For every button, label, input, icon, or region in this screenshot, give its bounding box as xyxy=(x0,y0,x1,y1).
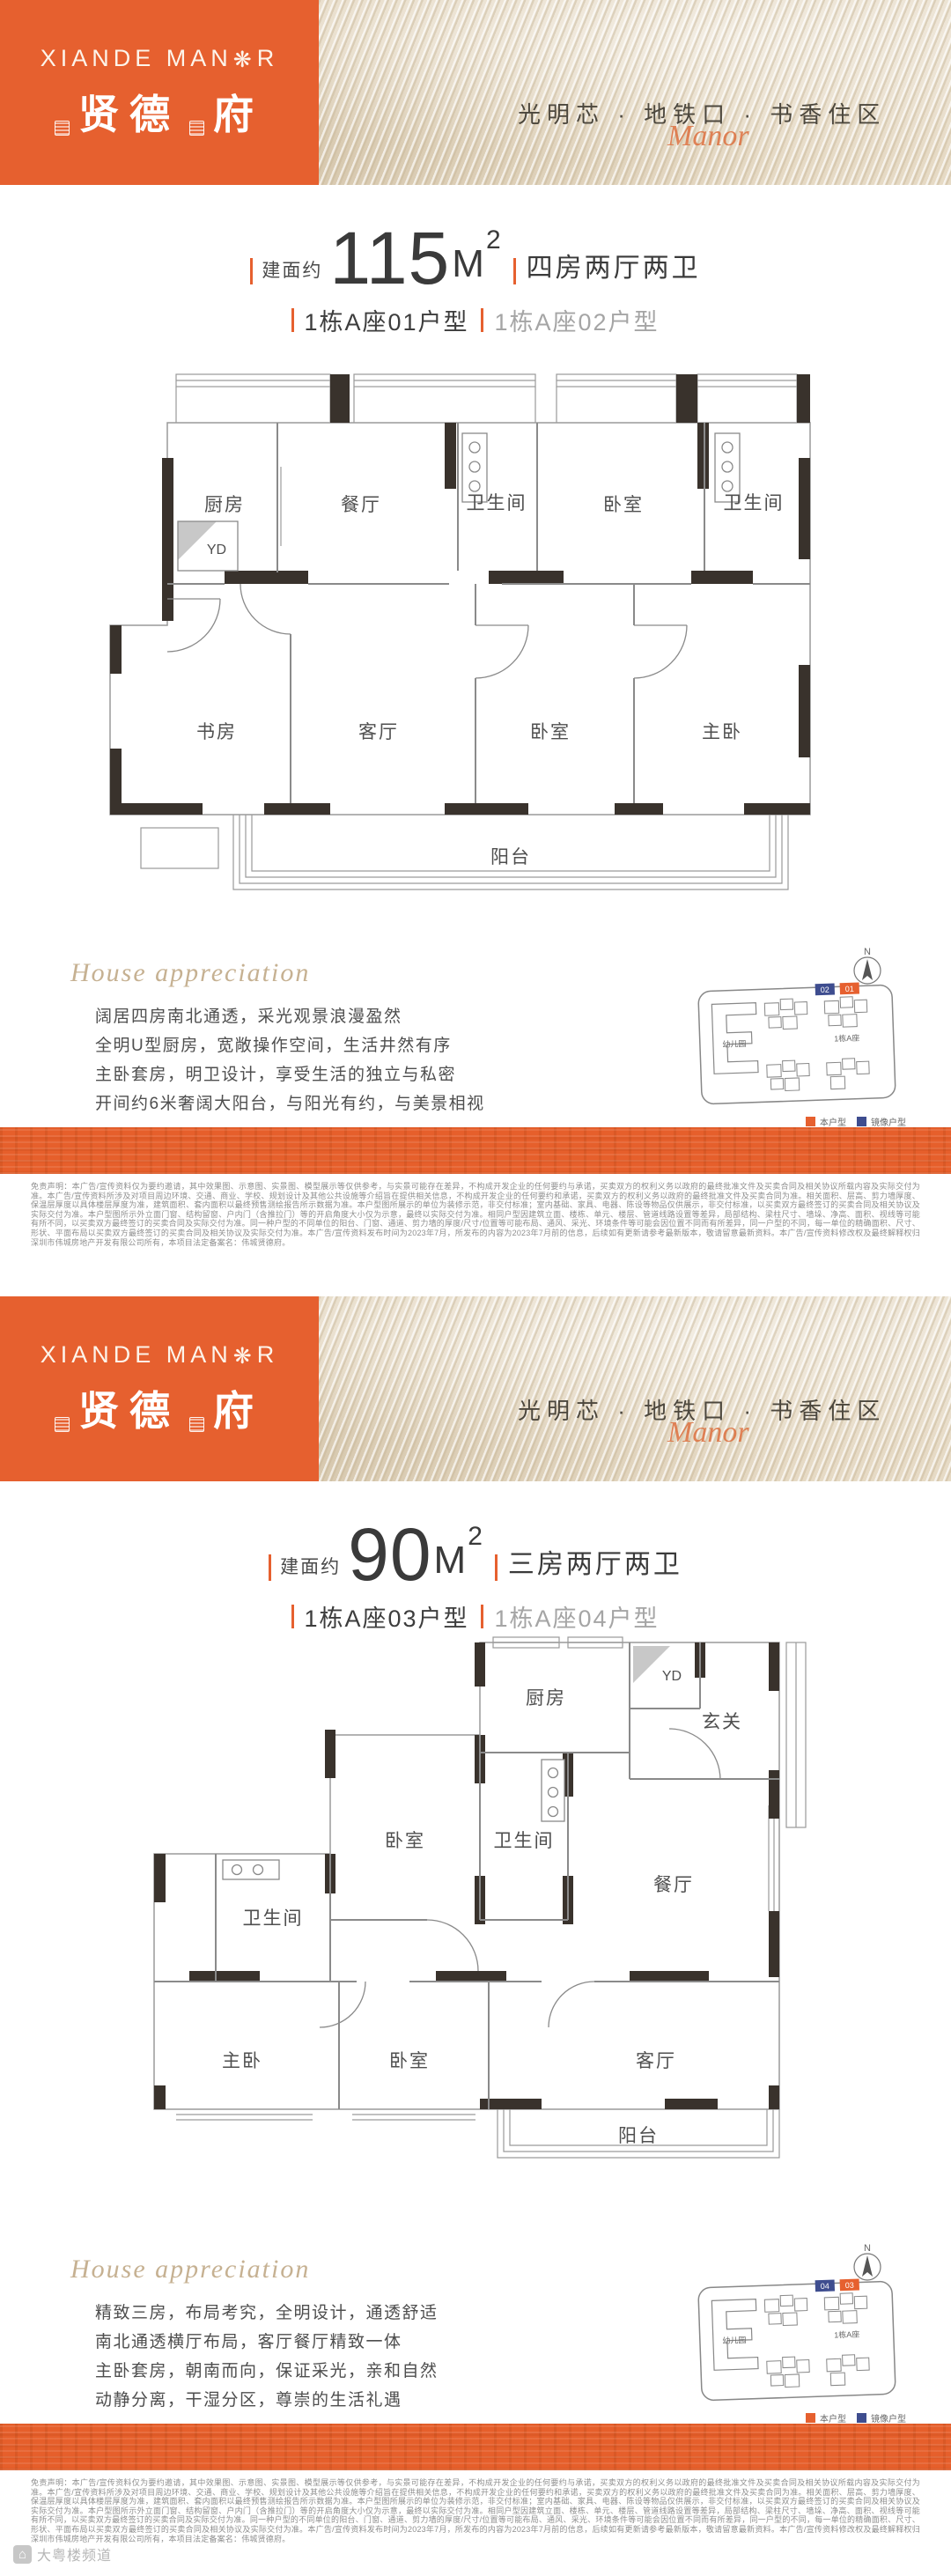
appreciation-line: 主卧套房，明卫设计，享受生活的独立与私密 xyxy=(95,1060,616,1089)
seal-stamp-icon xyxy=(189,1417,204,1432)
legend-mirror-swatch xyxy=(857,2413,866,2423)
rosette-icon: ❋ xyxy=(233,1343,256,1369)
kindergarten-label: 幼儿园 xyxy=(722,1038,746,1049)
room-label-bath2: 卫生间 xyxy=(243,1908,304,1929)
unit-title: 建面约 90 M 2 三房两厅两卫 xyxy=(0,1522,951,1585)
brand-logo: XIANDE MAN❋R 贤德 府 xyxy=(0,1296,319,1481)
svg-text:N: N xyxy=(864,2243,871,2254)
room-label-yd: YD xyxy=(207,543,226,557)
room-label-balcony: 阳台 xyxy=(618,2126,659,2146)
room-label-bedroom2: 卧室 xyxy=(389,2051,430,2071)
door-arcs xyxy=(167,584,687,678)
logo-chinese: 贤德 府 xyxy=(55,83,264,141)
house-appreciation: House appreciation 阔居四房南北通透，采光观景浪漫盈然 全明U… xyxy=(70,958,616,1118)
room-label-bath2: 卫生间 xyxy=(724,493,785,513)
logo-chinese: 贤德 府 xyxy=(55,1379,264,1437)
appreciation-line: 精致三房，布局考究，全明设计，通透舒适 xyxy=(95,2299,616,2328)
watermark: ⌂ 大粤楼频道 xyxy=(13,2543,112,2565)
room-label-bedroom1: 卧室 xyxy=(385,1831,425,1851)
brand-header: 光明芯 · 地铁口 · 书香住区 Manor XIANDE MAN❋R 贤德 府 xyxy=(0,1296,951,1481)
site-plan: N 幼儿园 04 03 1栋A座 本户型 镜像户型 xyxy=(678,2240,916,2443)
appreciation-line: 全明U型厨房，宽敞操作空间，生活井然有序 xyxy=(95,1031,616,1060)
area-value: 90 xyxy=(348,1524,431,1585)
kindergarten-label: 幼儿园 xyxy=(722,2335,746,2345)
unit-number-mirror: 1栋A座02户型 xyxy=(495,303,660,337)
this-unit-tag-label: 01 xyxy=(845,985,854,993)
yd-duct: YD xyxy=(633,1646,682,1684)
compass-icon: N xyxy=(854,947,881,984)
area-unit: M xyxy=(452,242,484,286)
appreciation-line: 主卧套房，朝南而向，保证采光，亲和自然 xyxy=(95,2357,616,2386)
area-superscript: 2 xyxy=(486,225,501,255)
pattern-band xyxy=(0,2424,951,2470)
area-unit: M xyxy=(434,1539,467,1583)
accent-bar xyxy=(495,1554,498,1581)
room-label-yd: YD xyxy=(662,1669,682,1684)
watermark-label: 大粤楼频道 xyxy=(37,2543,112,2565)
logo-english: XIANDE MAN❋R xyxy=(41,1341,278,1369)
kindergarten-building xyxy=(711,1003,758,1074)
accent-bar xyxy=(513,258,516,284)
room-label-kitchen: 厨房 xyxy=(526,1688,566,1709)
kindergarten-building xyxy=(711,2299,758,2371)
room-label-living: 客厅 xyxy=(358,722,399,742)
seal-stamp-icon xyxy=(55,1417,70,1432)
appreciation-heading: House appreciation xyxy=(70,958,616,988)
room-label-bedroom1: 卧室 xyxy=(603,495,644,515)
area-value: 115 xyxy=(329,228,450,289)
pattern-band xyxy=(0,1127,951,1174)
accent-bar xyxy=(291,1605,294,1628)
room-label-kitchen: 厨房 xyxy=(204,495,245,515)
house-icon: ⌂ xyxy=(13,2545,32,2564)
house-appreciation: House appreciation 精致三房，布局考究，全明设计，通透舒适 南… xyxy=(70,2255,616,2415)
layout-type: 三房两厅两卫 xyxy=(508,1542,682,1581)
room-label-foyer: 玄关 xyxy=(702,1712,742,1732)
room-label-master: 主卧 xyxy=(702,722,742,742)
area-superscript: 2 xyxy=(468,1522,483,1552)
partition-walls xyxy=(167,423,810,803)
room-label-balcony: 阳台 xyxy=(490,847,531,867)
room-label-living: 客厅 xyxy=(636,2051,676,2071)
appreciation-heading: House appreciation xyxy=(70,2255,616,2284)
seal-stamp-icon xyxy=(189,121,204,136)
seal-stamp-icon xyxy=(55,121,70,136)
floorplan-115: YD 厨房 餐厅 卫生间 卧室 卫生间 书房 客厅 卧室 主卧 阳台 xyxy=(44,335,907,916)
bath-fixtures xyxy=(223,1760,564,1879)
room-label-dining: 餐厅 xyxy=(341,495,381,515)
unit-number-primary: 1栋A座01户型 xyxy=(304,303,468,337)
brand-logo: XIANDE MAN❋R 贤德 府 xyxy=(0,0,319,185)
layout-type: 四房两厅两卫 xyxy=(527,246,701,284)
room-label-bath1: 卫生间 xyxy=(467,493,527,513)
accent-bar xyxy=(481,308,483,332)
building-cluster xyxy=(764,996,870,1091)
brand-header: 光明芯 · 地铁口 · 书香住区 Manor XIANDE MAN❋R 贤德 府 xyxy=(0,0,951,185)
accent-bar xyxy=(291,308,294,332)
this-unit-tag-label: 03 xyxy=(845,2281,854,2290)
accent-bar xyxy=(250,258,253,284)
appreciation-line: 阔居四房南北通透，采光观景浪漫盈然 xyxy=(95,1002,616,1031)
site-plan: N 幼儿园 02 01 1栋A座 本户型 镜像户型 xyxy=(678,944,916,1147)
building-cluster xyxy=(764,2292,870,2388)
unit-subtitle: 1栋A座01户型 1栋A座02户型 xyxy=(0,303,951,337)
side-ledge xyxy=(141,828,218,868)
mirror-unit-tag-label: 02 xyxy=(821,985,829,994)
tagline-script: Manor xyxy=(667,120,749,153)
disclaimer-text: 免责声明：本广告/宣传资料仅为要约邀请，其中效果图、示意图、实景图、模型展示等仅… xyxy=(31,1182,920,1247)
accent-bar xyxy=(481,1605,483,1628)
legend-this-swatch xyxy=(806,2413,815,2423)
svg-text:N: N xyxy=(864,947,871,957)
area-prefix: 建面约 xyxy=(262,256,322,283)
window-symbols xyxy=(176,374,797,423)
appreciation-line: 开间约6米奢阔大阳台，与阳光有约，与美景相视 xyxy=(95,1089,616,1118)
area-prefix: 建面约 xyxy=(280,1553,341,1579)
room-label-dining: 餐厅 xyxy=(653,1875,694,1895)
appreciation-line: 南北通透横厅布局，客厅餐厅精致一体 xyxy=(95,2328,616,2357)
room-label-bath1: 卫生间 xyxy=(494,1831,555,1851)
building-label: 1栋A座 xyxy=(834,2329,859,2340)
building-label: 1栋A座 xyxy=(834,1033,859,1044)
room-label-study: 书房 xyxy=(196,722,237,742)
room-label-bedroom2: 卧室 xyxy=(530,722,571,742)
yd-duct: YD xyxy=(178,521,238,571)
section-115: 光明芯 · 地铁口 · 书香住区 Manor XIANDE MAN❋R 贤德 府… xyxy=(0,0,951,1296)
legend-this-swatch xyxy=(806,1117,815,1126)
compass-icon: N xyxy=(854,2243,881,2280)
accent-bar xyxy=(269,1554,271,1581)
mirror-unit-tag-label: 04 xyxy=(821,2282,829,2291)
logo-english: XIANDE MAN❋R xyxy=(41,45,278,72)
section-90: 光明芯 · 地铁口 · 书香住区 Manor XIANDE MAN❋R 贤德 府… xyxy=(0,1296,951,2576)
unit-title: 建面约 115 M 2 四房两厅两卫 xyxy=(0,225,951,289)
appreciation-line: 动静分离，干湿分区，尊崇的生活礼遇 xyxy=(95,2386,616,2415)
floorplan-90: YD 厨房 玄关 卧室 卫生间 餐厅 卫生间 主卧 卧室 客厅 阳台 xyxy=(101,1629,885,2175)
room-label-master: 主卧 xyxy=(222,2051,262,2071)
disclaimer-text: 免责声明：本广告/宣传资料仅为要约邀请，其中效果图、示意图、实景图、模型展示等仅… xyxy=(31,2478,920,2543)
tagline-script: Manor xyxy=(667,1416,749,1450)
legend-mirror-swatch xyxy=(857,1117,866,1126)
rosette-icon: ❋ xyxy=(233,47,256,73)
